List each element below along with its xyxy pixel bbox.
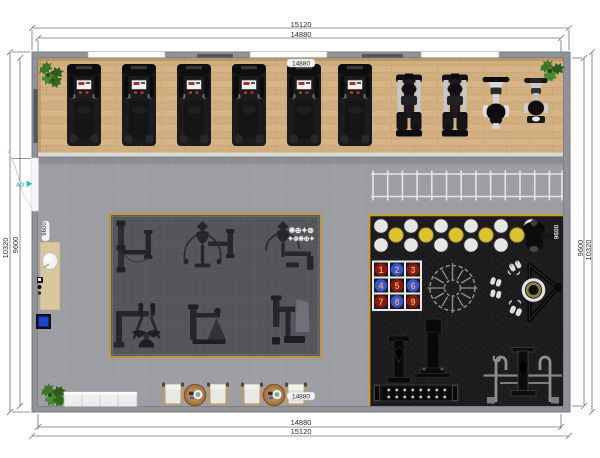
svg-text:3: 3: [410, 265, 415, 275]
svg-text:9600: 9600: [554, 224, 561, 239]
svg-text:10320: 10320: [584, 240, 593, 261]
svg-text:AD: AD: [16, 183, 24, 189]
svg-text:14880: 14880: [292, 61, 310, 68]
svg-text:4: 4: [378, 281, 383, 291]
svg-text:2: 2: [394, 265, 399, 275]
svg-text:9: 9: [410, 297, 415, 307]
svg-text:✦⊗❋⊕✦: ✦⊗❋⊕✦: [288, 235, 315, 243]
svg-text:9600: 9600: [11, 237, 20, 254]
svg-text:14880: 14880: [291, 418, 312, 427]
svg-text:14880: 14880: [292, 394, 310, 401]
svg-text:9600: 9600: [42, 222, 48, 236]
svg-text:❋⊕✦⊗: ❋⊕✦⊗: [289, 226, 315, 235]
svg-text:7: 7: [378, 297, 383, 307]
svg-text:1: 1: [378, 265, 383, 275]
svg-text:8: 8: [394, 297, 399, 307]
svg-text:6: 6: [410, 281, 415, 291]
svg-text:14880: 14880: [291, 30, 312, 39]
svg-text:10320: 10320: [1, 238, 10, 259]
svg-text:15120: 15120: [291, 427, 312, 436]
svg-text:5: 5: [394, 281, 399, 291]
svg-text:15120: 15120: [291, 20, 312, 29]
